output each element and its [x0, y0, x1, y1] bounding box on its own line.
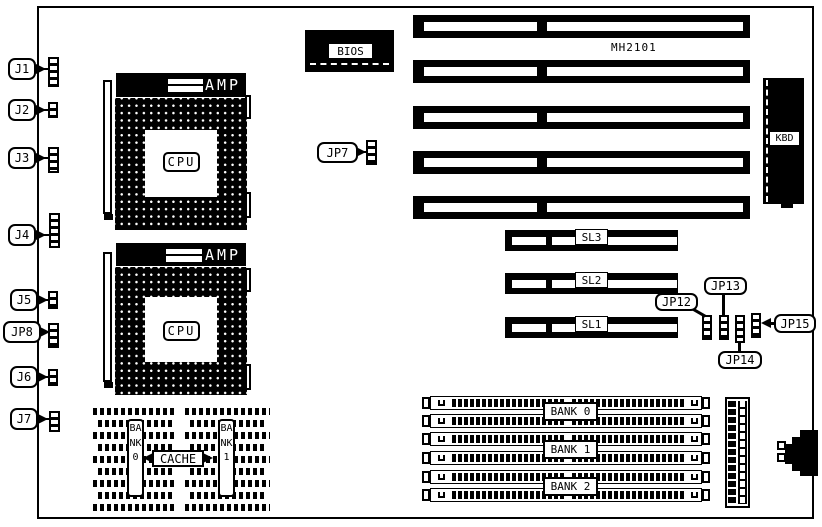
amp-brand-label: AMP — [205, 76, 241, 94]
callout-lead — [45, 418, 49, 420]
bank2-label: BANK 2 — [543, 477, 598, 496]
socket-notch — [168, 79, 203, 92]
jumper-callout-jp15: JP15 — [774, 314, 816, 333]
socket-tab — [245, 364, 251, 390]
sl2-label: SL2 — [575, 272, 608, 288]
callout-lead — [44, 157, 49, 159]
power-sockets — [738, 401, 747, 504]
sl-slot-sl2: SL2 — [505, 273, 678, 294]
pin-header-j3 — [48, 147, 59, 173]
socket-tab — [245, 192, 251, 218]
socket-lever — [103, 80, 112, 214]
pin-header-j4 — [49, 213, 60, 248]
socket-lever-foot — [104, 382, 113, 388]
din-pin — [777, 441, 786, 450]
pin-header-j1 — [48, 57, 59, 87]
chipset-label: MH2101 — [611, 41, 657, 54]
isa-slot-2 — [413, 60, 750, 83]
sl3-label: SL3 — [575, 229, 608, 245]
cache-bank1-label: BANK1 — [218, 419, 235, 497]
callout-lead — [44, 234, 50, 236]
jumper-callout-jp12: JP12 — [655, 293, 698, 311]
pin-header-j7 — [49, 411, 60, 432]
callout-arrow-icon — [203, 453, 213, 463]
pin-header-jp14 — [735, 315, 745, 343]
connector-callout-j6: J6 — [10, 366, 38, 388]
din-pin — [777, 453, 786, 462]
power-connector — [725, 397, 750, 508]
motherboard-diagram: J1 J2 J3 J4 J5 JP8 J6 J7 AMP CPU AMP CPU — [0, 0, 822, 527]
pin-header-jp15 — [751, 313, 761, 338]
connector-callout-j1: J1 — [8, 58, 36, 80]
callout-lead — [722, 294, 725, 316]
sl1-label: SL1 — [575, 316, 608, 332]
isa-slot-4 — [413, 151, 750, 174]
cache-bank0-label: BANK0 — [127, 419, 144, 497]
connector-callout-j4: J4 — [8, 224, 36, 246]
socket-lever-foot — [104, 214, 113, 220]
pin-header-jp12 — [702, 315, 712, 340]
din-keyboard-connector — [800, 470, 818, 476]
connector-callout-j3: J3 — [8, 147, 36, 169]
callout-lead — [44, 109, 49, 111]
callout-lead — [45, 376, 49, 378]
kbd-label: KBD — [769, 131, 800, 146]
isa-slot-5 — [413, 196, 750, 219]
kbd-tab — [781, 204, 793, 208]
callout-lead — [45, 299, 49, 301]
sl-slot-sl3: SL3 — [505, 230, 678, 251]
socket-tab — [245, 95, 251, 119]
keyboard-connector-edge — [766, 80, 768, 202]
pin-header-j2 — [48, 102, 58, 118]
socket-tab — [245, 268, 251, 292]
socket-notch — [166, 249, 202, 262]
pin-header-j6 — [48, 369, 58, 386]
jumper-callout-jp7: JP7 — [317, 142, 358, 163]
din-keyboard-connector — [785, 444, 818, 464]
callout-lead — [45, 331, 49, 333]
jumper-callout-jp13: JP13 — [704, 277, 747, 295]
connector-callout-jp8: JP8 — [3, 321, 41, 343]
bios-socket-line — [310, 63, 389, 65]
isa-slot-3 — [413, 106, 750, 129]
connector-callout-j2: J2 — [8, 99, 36, 121]
callout-lead — [363, 151, 367, 153]
bank1-label: BANK 1 — [543, 440, 598, 459]
callout-lead — [44, 68, 49, 70]
pin-header-jp7 — [366, 140, 377, 165]
pin-header-j5 — [48, 291, 58, 309]
cpu-label: CPU — [163, 321, 200, 341]
amp-brand-label: AMP — [205, 246, 241, 264]
pin-header-jp13 — [719, 315, 729, 340]
jumper-callout-jp14: JP14 — [718, 351, 762, 369]
bios-label: BIOS — [329, 44, 372, 58]
cpu-label: CPU — [163, 152, 200, 172]
sl-slot-sl1: SL1 — [505, 317, 678, 338]
connector-callout-j5: J5 — [10, 289, 38, 311]
bank0-label: BANK 0 — [543, 402, 598, 421]
power-pins — [728, 401, 736, 504]
socket-lever — [103, 252, 112, 382]
connector-callout-j7: J7 — [10, 408, 38, 430]
isa-slot-1 — [413, 15, 750, 38]
cache-label: CACHE — [152, 450, 204, 467]
